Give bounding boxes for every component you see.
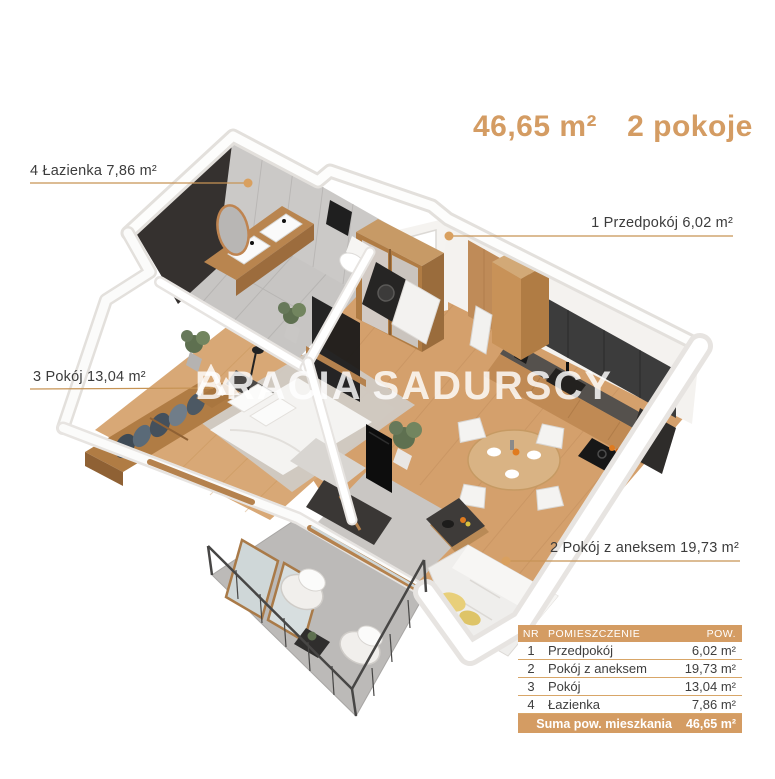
table-row: 2 Pokój z aneksem 19,73 m² <box>518 660 742 678</box>
floorplan-page: 46,65 m² 2 pokoje 4 Łazienka 7,86 m² 1 P… <box>0 0 775 779</box>
watermark: BRACIA SADURSCY <box>195 364 613 409</box>
label-living: 2 Pokój z aneksem 19,73 m² <box>527 540 739 556</box>
table-row: 4 Łazienka 7,86 m² <box>518 696 742 714</box>
area-table: NR POMIESZCZENIE POW. 1 Przedpokój 6,02 … <box>518 625 742 733</box>
col-area: POW. <box>666 628 742 640</box>
area-table-footer: Suma pow. mieszkania 46,65 m² <box>518 714 742 733</box>
label-hall: 1 Przedpokój 6,02 m² <box>575 215 733 231</box>
label-room: 3 Pokój 13,04 m² <box>33 369 146 385</box>
area-table-header: NR POMIESZCZENIE POW. <box>518 625 742 642</box>
total-value: 46,65 m² <box>686 717 736 731</box>
col-nr: NR <box>518 628 544 640</box>
table-row: 1 Przedpokój 6,02 m² <box>518 642 742 660</box>
dining-chair <box>534 486 563 510</box>
leader-dot-hall <box>445 232 454 241</box>
room-count: 2 pokoje <box>620 110 760 144</box>
total-area: 46,65 m² <box>455 110 615 144</box>
watermark-right: SADURSCY <box>373 364 613 409</box>
brand-logo-icon <box>195 364 241 398</box>
label-bathroom: 4 Łazienka 7,86 m² <box>30 163 157 179</box>
total-label: Suma pow. mieszkania <box>536 717 672 731</box>
fruit-bowl <box>609 445 615 451</box>
leader-dot-living <box>502 557 511 566</box>
col-name: POMIESZCZENIE <box>544 628 666 640</box>
leader-dot-bathroom <box>244 179 253 188</box>
table-row: 3 Pokój 13,04 m² <box>518 678 742 696</box>
